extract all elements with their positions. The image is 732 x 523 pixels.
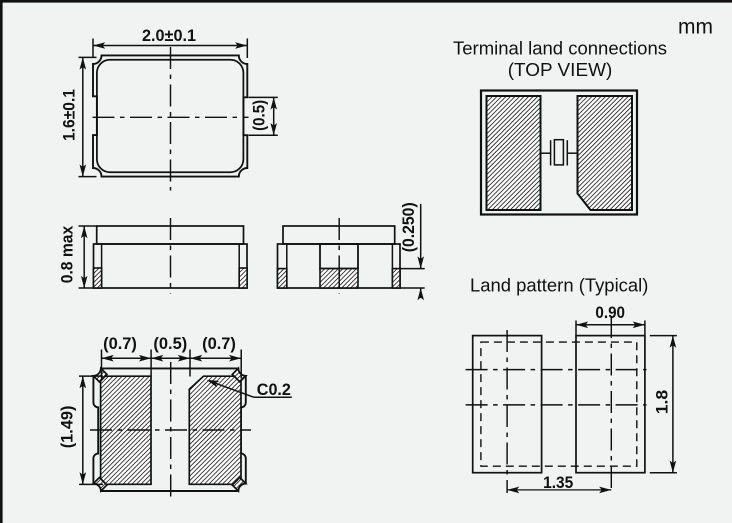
svg-text:(0.5): (0.5)	[251, 100, 269, 131]
svg-text:0.8 max: 0.8 max	[59, 225, 77, 283]
svg-text:Land pattern (Typical): Land pattern (Typical)	[470, 275, 648, 296]
svg-text:1.8: 1.8	[654, 390, 672, 414]
svg-text:(1.49): (1.49)	[59, 406, 77, 449]
svg-text:Terminal land connections: Terminal land connections	[453, 39, 667, 59]
svg-text:(0.5): (0.5)	[153, 335, 187, 353]
svg-text:2.0±0.1: 2.0±0.1	[142, 27, 196, 45]
svg-text:(0.7): (0.7)	[202, 335, 236, 353]
svg-text:0.90: 0.90	[595, 304, 625, 322]
svg-text:mm: mm	[678, 16, 713, 39]
svg-text:1.6±0.1: 1.6±0.1	[61, 89, 79, 141]
svg-text:1.35: 1.35	[543, 474, 573, 492]
svg-text:(0.250): (0.250)	[400, 202, 418, 252]
svg-text:C0.2: C0.2	[257, 381, 291, 399]
svg-text:(TOP VIEW): (TOP VIEW)	[508, 60, 613, 80]
svg-text:(0.7): (0.7)	[103, 335, 137, 353]
